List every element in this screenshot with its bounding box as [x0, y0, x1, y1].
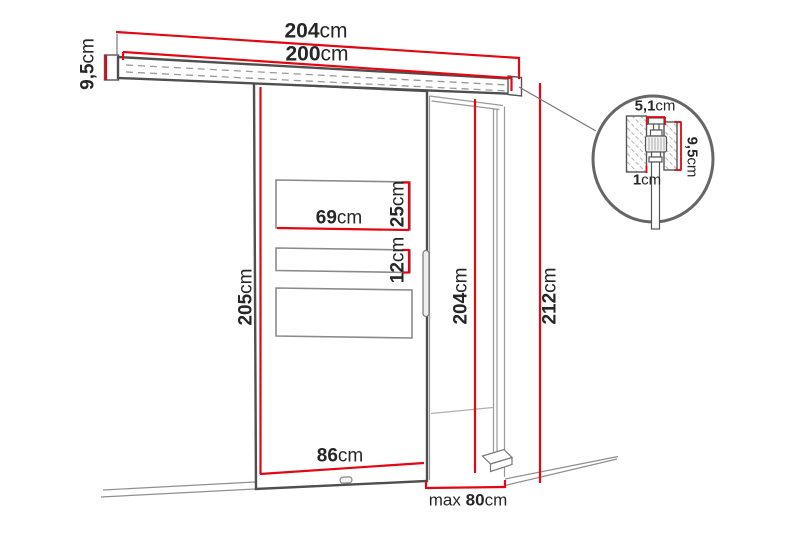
label-detail-gap-1: 1cm: [633, 173, 661, 188]
detail-leader-line: [519, 87, 596, 131]
label-opening-width-max-80: max80cm: [429, 492, 507, 509]
inset-panel-bottom: [276, 288, 412, 338]
label-detail-height-9-5: 9,5cm: [685, 137, 700, 178]
door-panel: [254, 83, 429, 489]
label-door-width-86: 86cm: [317, 447, 363, 466]
label-rail-height-9-5: 9,5cm: [79, 38, 98, 90]
label-detail-width-5-1: 5,1cm: [635, 99, 676, 114]
label-opening-height-204: 204cm: [452, 267, 471, 324]
wall-section-left: [627, 116, 647, 172]
label-door-height-205: 205cm: [237, 268, 256, 325]
label-rail-total-204: 204cm: [284, 21, 347, 42]
label-panel-mid-height-12: 12cm: [389, 237, 408, 283]
label-total-height-212: 212cm: [541, 267, 560, 324]
label-panel-width-69: 69cm: [316, 209, 362, 228]
floor-guide: [340, 477, 352, 484]
roller-wheel: [646, 136, 667, 152]
door-top-section: [649, 152, 662, 229]
dim-line-max-80-opening-width: [426, 487, 505, 488]
label-panel-top-height-25: 25cm: [389, 181, 408, 227]
label-rail-track-200: 200cm: [285, 44, 348, 65]
sliding-door-diagram: 204cm 200cm 9,5cm 205cm 69cm 25cm 12cm 8…: [0, 0, 800, 533]
door-handle: [423, 251, 429, 317]
